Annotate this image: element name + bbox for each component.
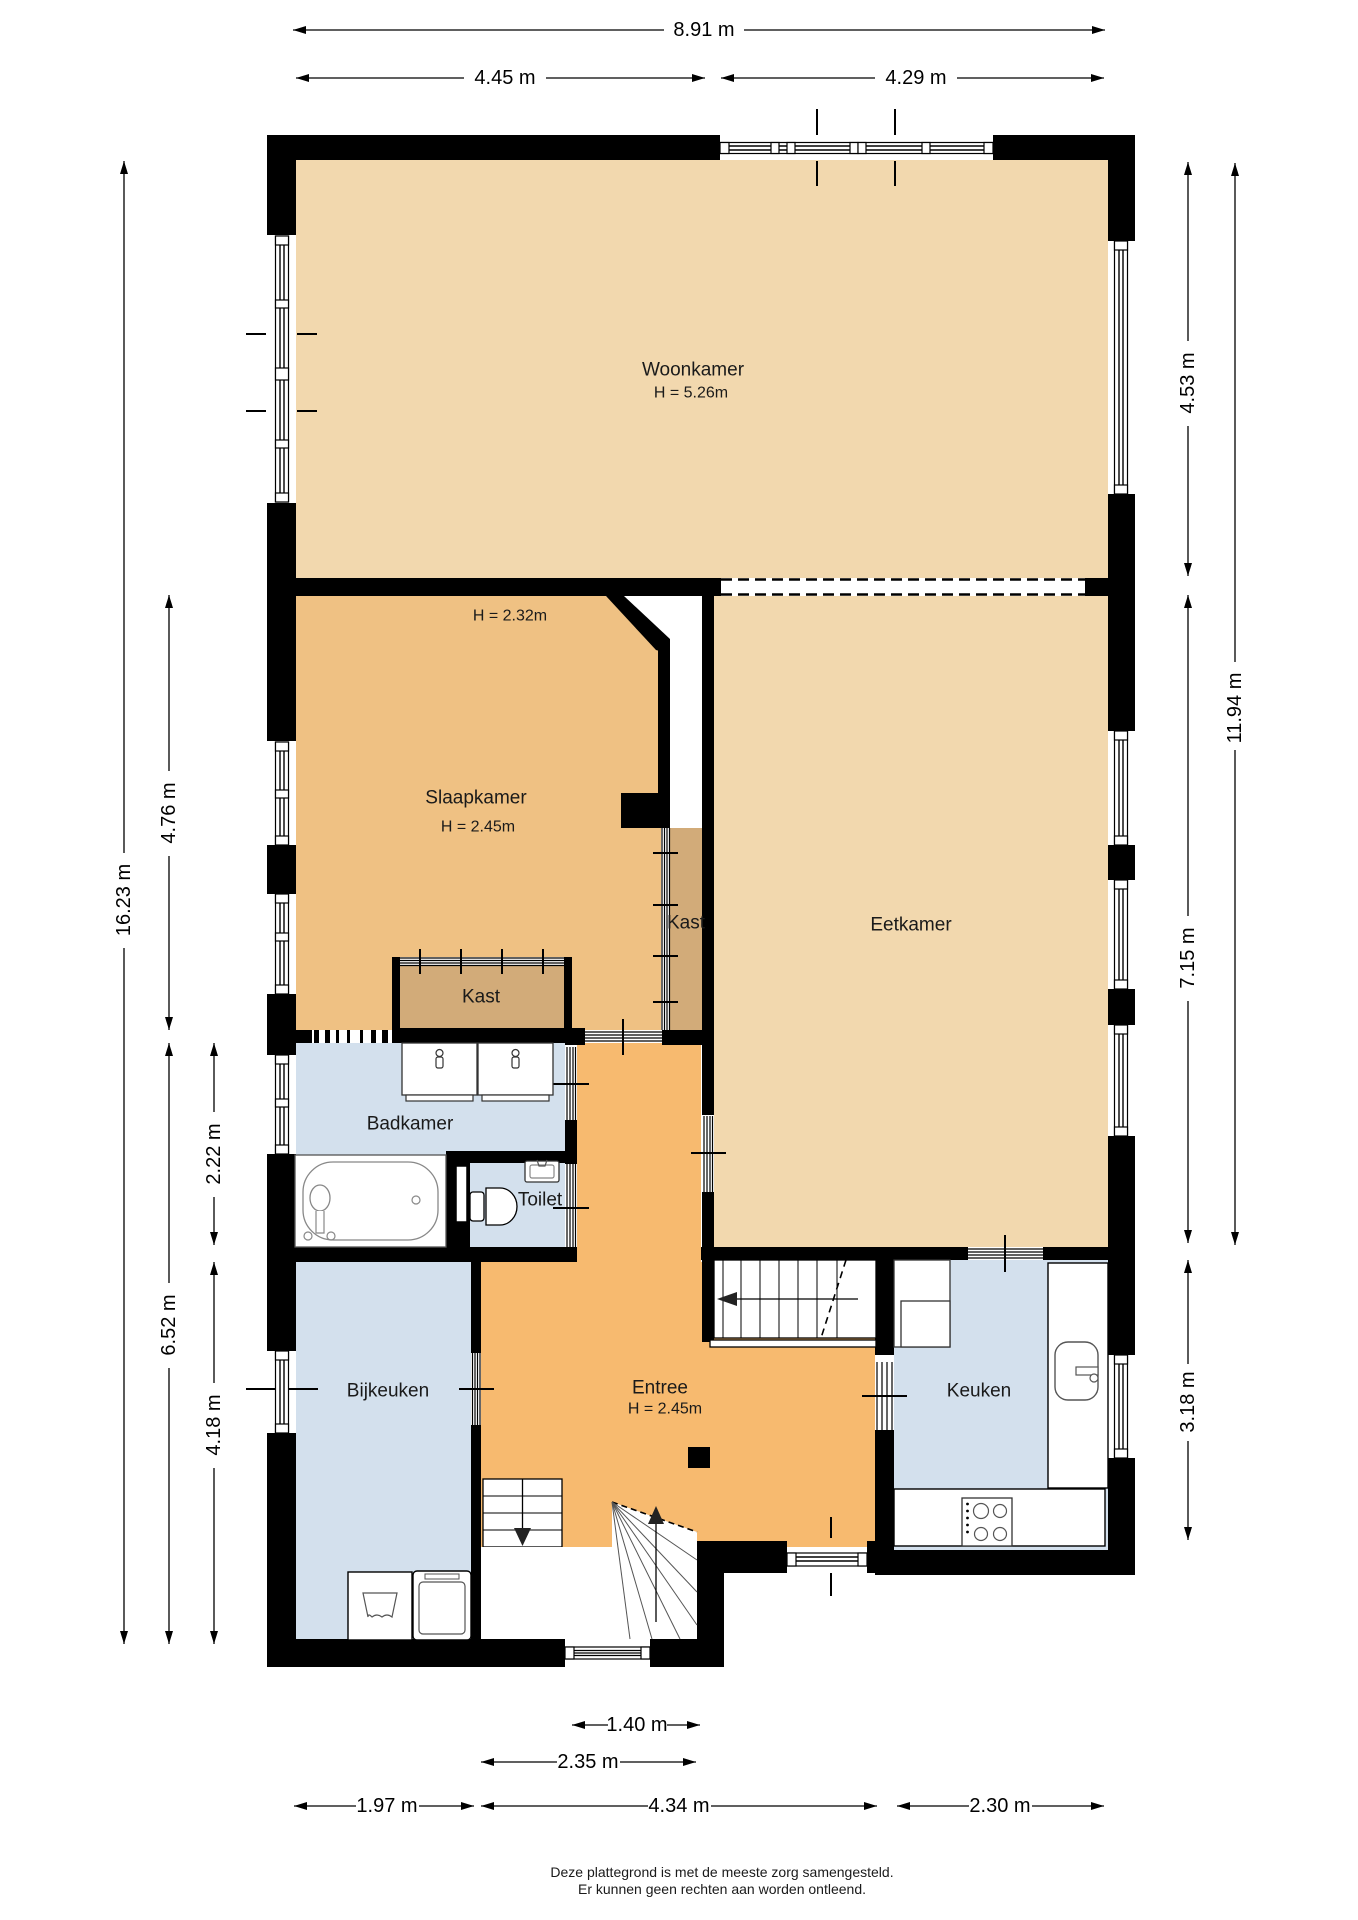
svg-text:4.53 m: 4.53 m: [1177, 352, 1199, 413]
svg-text:6.52 m: 6.52 m: [158, 1294, 180, 1355]
svg-text:Entree: Entree: [632, 1378, 688, 1399]
svg-text:Kast: Kast: [462, 987, 501, 1008]
svg-text:Toilet: Toilet: [518, 1190, 563, 1211]
svg-text:H = 2.45m: H = 2.45m: [441, 819, 515, 836]
svg-text:Er kunnen geen rechten aan wor: Er kunnen geen rechten aan worden ontlee…: [578, 1881, 866, 1897]
svg-text:Eetkamer: Eetkamer: [870, 915, 952, 936]
svg-text:4.18 m: 4.18 m: [203, 1394, 225, 1455]
svg-text:2.22 m: 2.22 m: [203, 1123, 225, 1184]
svg-text:H = 2.32m: H = 2.32m: [473, 608, 547, 625]
svg-text:11.94 m: 11.94 m: [1224, 673, 1246, 744]
svg-text:4.29 m: 4.29 m: [885, 67, 946, 89]
svg-text:Woonkamer: Woonkamer: [642, 360, 745, 381]
svg-text:2.30 m: 2.30 m: [969, 1795, 1030, 1817]
svg-text:4.45 m: 4.45 m: [474, 67, 535, 89]
svg-text:3.18 m: 3.18 m: [1177, 1371, 1199, 1432]
svg-text:Badkamer: Badkamer: [367, 1114, 454, 1135]
svg-text:H = 2.45m: H = 2.45m: [628, 1401, 702, 1418]
svg-text:16.23 m: 16.23 m: [113, 864, 135, 936]
svg-text:1.97 m: 1.97 m: [356, 1795, 417, 1817]
svg-text:Keuken: Keuken: [947, 1381, 1011, 1402]
svg-text:4.34 m: 4.34 m: [648, 1795, 709, 1817]
svg-text:Kast: Kast: [667, 913, 706, 934]
svg-text:2.35 m: 2.35 m: [557, 1751, 618, 1773]
svg-text:8.91 m: 8.91 m: [673, 19, 734, 41]
svg-text:Bijkeuken: Bijkeuken: [347, 1381, 429, 1402]
svg-text:4.76 m: 4.76 m: [158, 782, 180, 843]
svg-text:H = 5.26m: H = 5.26m: [654, 385, 728, 402]
svg-text:Slaapkamer: Slaapkamer: [425, 788, 527, 809]
svg-text:1.40 m: 1.40 m: [606, 1714, 667, 1736]
svg-text:7.15 m: 7.15 m: [1177, 927, 1199, 988]
svg-text:Deze plattegrond is met de mee: Deze plattegrond is met de meeste zorg s…: [550, 1864, 893, 1880]
